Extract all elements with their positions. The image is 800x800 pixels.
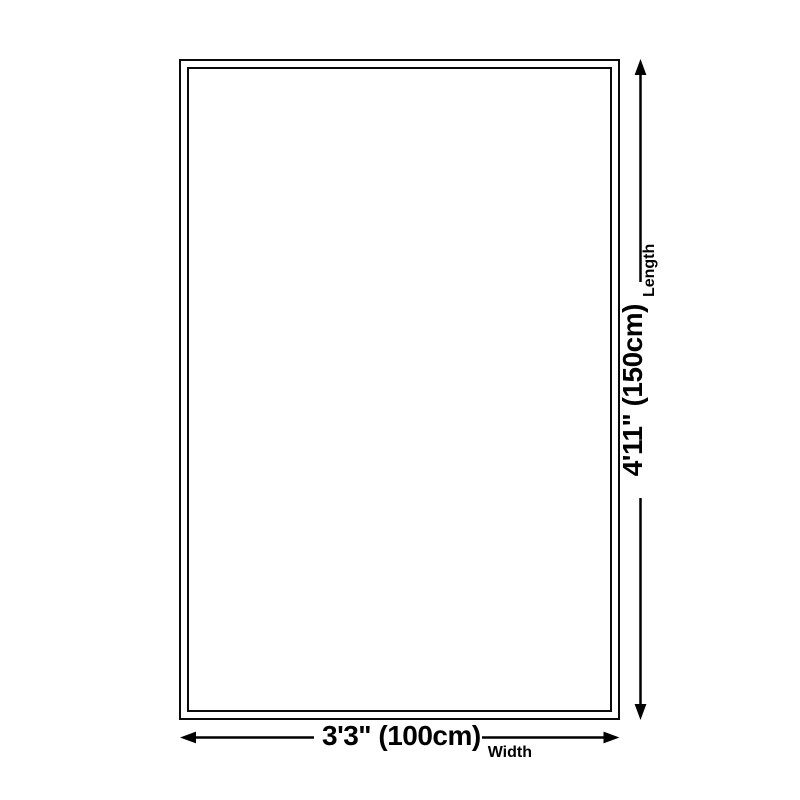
- item-outline-outer: [179, 59, 620, 720]
- length-sub-label: Length: [641, 244, 658, 297]
- size-diagram: 4'11" (150cm)Length 3'3" (100cm)Width: [0, 0, 800, 800]
- length-value: 4'11" (150cm): [617, 304, 648, 476]
- width-sub-label: Width: [488, 744, 532, 761]
- width-dimension-label: 3'3" (100cm)Width: [322, 722, 532, 750]
- length-dimension-label: 4'11" (150cm)Length: [619, 244, 647, 477]
- width-value: 3'3" (100cm): [322, 720, 481, 751]
- item-outline-inner: [187, 67, 612, 712]
